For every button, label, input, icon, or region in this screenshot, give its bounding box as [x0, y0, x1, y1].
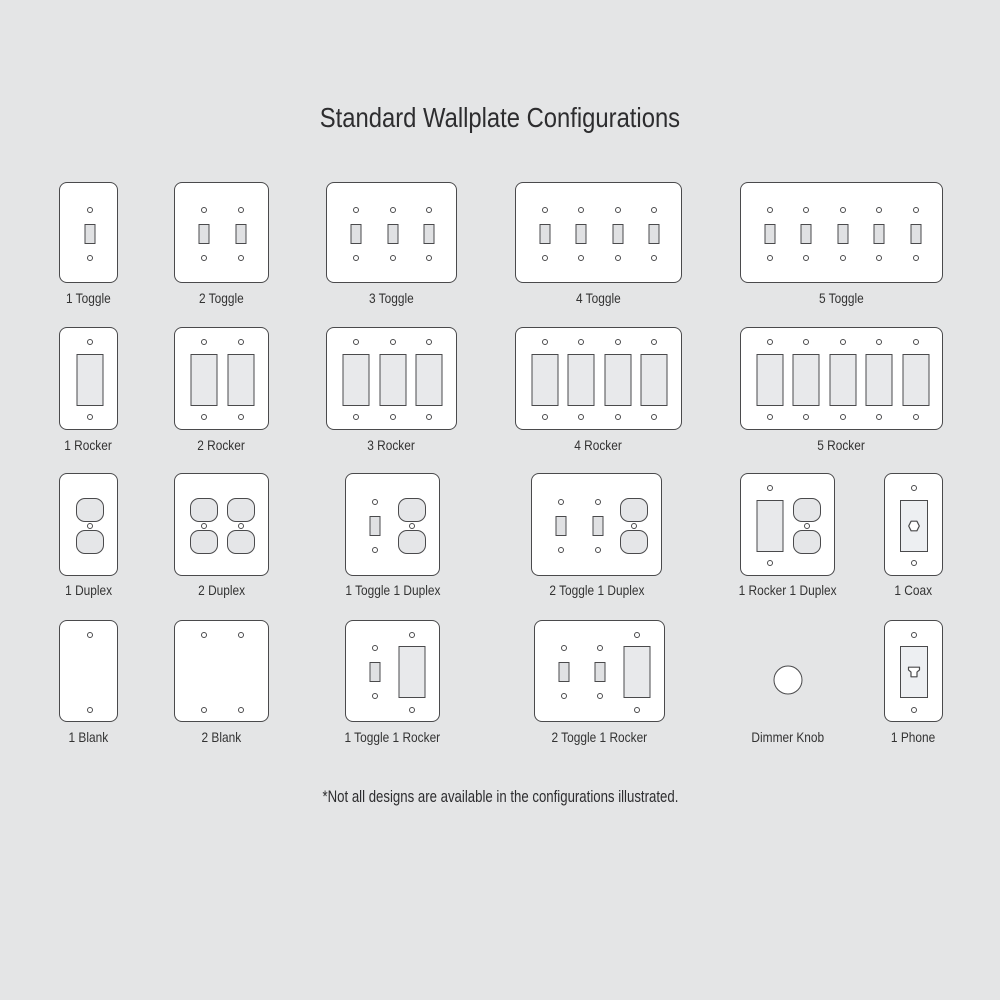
screw-hole	[542, 414, 548, 420]
screw-hole	[597, 645, 603, 651]
screw-hole	[390, 414, 396, 420]
screw-hole	[201, 207, 207, 213]
wallplate-5-rocker	[740, 327, 943, 430]
screw-hole	[911, 485, 917, 491]
screw-hole	[578, 339, 584, 345]
screw-hole	[372, 693, 378, 699]
toggle-switch-cutout	[539, 224, 550, 244]
toggle-switch-cutout	[801, 224, 812, 244]
toggle-switch-cutout	[370, 516, 381, 536]
duplex-outlet-receptacle	[76, 530, 104, 554]
screw-hole	[767, 255, 773, 261]
screw-hole	[238, 632, 244, 638]
screw-hole	[804, 523, 810, 529]
wallplate-1-toggle	[59, 182, 118, 283]
duplex-outlet-receptacle	[227, 498, 255, 522]
toggle-switch-cutout	[764, 224, 775, 244]
screw-hole	[615, 339, 621, 345]
wallplate-2-duplex	[174, 473, 269, 576]
wallplate-1-duplex	[59, 473, 118, 576]
screw-hole	[372, 645, 378, 651]
rocker-switch-cutout	[604, 354, 631, 406]
page-title: Standard Wallplate Configurations	[0, 102, 1000, 134]
duplex-outlet-receptacle	[620, 530, 648, 554]
toggle-switch-cutout	[351, 224, 362, 244]
plate-label-3-toggle: 3 Toggle	[282, 290, 502, 306]
screw-hole	[803, 255, 809, 261]
screw-hole	[372, 499, 378, 505]
wallplate-3-rocker	[326, 327, 457, 430]
screw-hole	[426, 207, 432, 213]
toggle-switch-cutout	[370, 662, 381, 682]
screw-hole	[911, 707, 917, 713]
toggle-switch-cutout	[556, 516, 567, 536]
screw-hole	[390, 339, 396, 345]
screw-hole	[651, 255, 657, 261]
rocker-switch-cutout	[866, 354, 893, 406]
screw-hole	[578, 207, 584, 213]
screw-hole	[558, 547, 564, 553]
wallplate-4-rocker	[515, 327, 682, 430]
toggle-switch-cutout	[387, 224, 398, 244]
plate-label-1-phone: 1 Phone	[803, 729, 1000, 745]
plate-label-2-toggle-1-rocker: 2 Toggle 1 Rocker	[489, 729, 709, 745]
screw-hole	[876, 207, 882, 213]
screw-hole	[767, 414, 773, 420]
wallplate-5-toggle	[740, 182, 943, 283]
phone-jack-icon	[908, 667, 921, 678]
screw-hole	[201, 632, 207, 638]
wallplate-1-rocker-1-duplex	[740, 473, 835, 576]
rocker-switch-cutout	[756, 354, 783, 406]
screw-hole	[542, 207, 548, 213]
wallplate-1-toggle-1-rocker	[345, 620, 440, 722]
screw-hole	[201, 523, 207, 529]
screw-hole	[426, 339, 432, 345]
screw-hole	[238, 523, 244, 529]
screw-hole	[913, 207, 919, 213]
screw-hole	[238, 339, 244, 345]
wallplate-2-rocker	[174, 327, 269, 430]
screw-hole	[767, 560, 773, 566]
duplex-outlet-receptacle	[190, 530, 218, 554]
wallplate-1-phone	[884, 620, 943, 722]
screw-hole	[201, 414, 207, 420]
screw-hole	[409, 707, 415, 713]
screw-hole	[634, 632, 640, 638]
screw-hole	[634, 707, 640, 713]
toggle-switch-cutout	[837, 224, 848, 244]
duplex-outlet-receptacle	[227, 530, 255, 554]
toggle-switch-cutout	[874, 224, 885, 244]
screw-hole	[615, 414, 621, 420]
screw-hole	[840, 339, 846, 345]
duplex-outlet-receptacle	[190, 498, 218, 522]
screw-hole	[353, 339, 359, 345]
toggle-switch-cutout	[424, 224, 435, 244]
rocker-switch-cutout	[379, 354, 406, 406]
plate-label-3-rocker: 3 Rocker	[282, 437, 502, 453]
toggle-switch-cutout	[235, 224, 246, 244]
screw-hole	[353, 207, 359, 213]
screw-hole	[87, 339, 93, 345]
screw-hole	[390, 255, 396, 261]
toggle-switch-cutout	[592, 516, 603, 536]
screw-hole	[201, 707, 207, 713]
screw-hole	[913, 255, 919, 261]
screw-hole	[578, 255, 584, 261]
wallplate-1-blank	[59, 620, 118, 722]
screw-hole	[409, 523, 415, 529]
rocker-switch-cutout	[191, 354, 218, 406]
rocker-switch-cutout	[76, 354, 103, 406]
screw-hole	[87, 523, 93, 529]
screw-hole	[631, 523, 637, 529]
duplex-outlet-receptacle	[793, 498, 821, 522]
screw-hole	[913, 339, 919, 345]
screw-hole	[87, 414, 93, 420]
wallplate-1-rocker	[59, 327, 118, 430]
rocker-switch-cutout	[793, 354, 820, 406]
screw-hole	[595, 547, 601, 553]
screw-hole	[876, 255, 882, 261]
duplex-outlet-receptacle	[398, 530, 426, 554]
screw-hole	[426, 414, 432, 420]
screw-hole	[238, 207, 244, 213]
plate-label-4-toggle: 4 Toggle	[489, 290, 709, 306]
coax-connector-icon	[908, 520, 920, 531]
screw-hole	[87, 632, 93, 638]
screw-hole	[595, 499, 601, 505]
plate-label-5-rocker: 5 Rocker	[732, 437, 952, 453]
screw-hole	[767, 207, 773, 213]
rocker-switch-cutout	[829, 354, 856, 406]
plate-label-2-toggle-1-duplex: 2 Toggle 1 Duplex	[487, 582, 707, 598]
footnote: *Not all designs are available in the co…	[0, 788, 1000, 807]
plate-label-4-rocker: 4 Rocker	[489, 437, 709, 453]
screw-hole	[840, 207, 846, 213]
screw-hole	[651, 339, 657, 345]
rocker-switch-cutout	[531, 354, 558, 406]
duplex-outlet-receptacle	[398, 498, 426, 522]
screw-hole	[390, 207, 396, 213]
wallplate-2-toggle-1-rocker	[534, 620, 665, 722]
duplex-outlet-receptacle	[793, 530, 821, 554]
screw-hole	[353, 414, 359, 420]
screw-hole	[561, 693, 567, 699]
screw-hole	[767, 339, 773, 345]
screw-hole	[911, 632, 917, 638]
screw-hole	[578, 414, 584, 420]
toggle-switch-cutout	[199, 224, 210, 244]
wallplate-4-toggle	[515, 182, 682, 283]
screw-hole	[803, 207, 809, 213]
toggle-switch-cutout	[910, 224, 921, 244]
screw-hole	[542, 255, 548, 261]
screw-hole	[353, 255, 359, 261]
screw-hole	[615, 255, 621, 261]
screw-hole	[840, 414, 846, 420]
screw-hole	[542, 339, 548, 345]
screw-hole	[238, 255, 244, 261]
duplex-outlet-receptacle	[620, 498, 648, 522]
screw-hole	[767, 485, 773, 491]
screw-hole	[561, 645, 567, 651]
screw-hole	[911, 560, 917, 566]
toggle-switch-cutout	[612, 224, 623, 244]
rocker-switch-cutout	[623, 646, 650, 698]
rocker-switch-cutout	[398, 646, 425, 698]
plate-label-1-coax: 1 Coax	[803, 582, 1000, 598]
screw-hole	[876, 414, 882, 420]
screw-hole	[615, 207, 621, 213]
plate-label-5-toggle: 5 Toggle	[732, 290, 952, 306]
toggle-switch-cutout	[84, 224, 95, 244]
screw-hole	[238, 414, 244, 420]
toggle-switch-cutout	[558, 662, 569, 682]
rocker-switch-cutout	[227, 354, 254, 406]
rocker-switch-cutout	[343, 354, 370, 406]
wallplate-1-toggle-1-duplex	[345, 473, 440, 576]
rocker-switch-cutout	[902, 354, 929, 406]
wallplate-2-blank	[174, 620, 269, 722]
diagram-canvas: Standard Wallplate Configurations 1 Togg…	[0, 0, 1000, 1000]
screw-hole	[87, 255, 93, 261]
screw-hole	[87, 207, 93, 213]
wallplate-3-toggle	[326, 182, 457, 283]
duplex-outlet-receptacle	[76, 498, 104, 522]
screw-hole	[803, 339, 809, 345]
rocker-switch-cutout	[568, 354, 595, 406]
screw-hole	[201, 255, 207, 261]
rocker-switch-cutout	[757, 500, 784, 552]
toggle-switch-cutout	[595, 662, 606, 682]
dimmer-knob	[774, 666, 803, 695]
toggle-switch-cutout	[649, 224, 660, 244]
screw-hole	[558, 499, 564, 505]
screw-hole	[87, 707, 93, 713]
wallplate-1-coax	[884, 473, 943, 576]
screw-hole	[597, 693, 603, 699]
screw-hole	[372, 547, 378, 553]
screw-hole	[840, 255, 846, 261]
screw-hole	[651, 414, 657, 420]
screw-hole	[876, 339, 882, 345]
wallplate-2-toggle	[174, 182, 269, 283]
wallplate-2-toggle-1-duplex	[531, 473, 662, 576]
rocker-switch-cutout	[416, 354, 443, 406]
screw-hole	[201, 339, 207, 345]
screw-hole	[238, 707, 244, 713]
plate-label-1-toggle-1-duplex: 1 Toggle 1 Duplex	[283, 582, 503, 598]
rocker-switch-cutout	[641, 354, 668, 406]
screw-hole	[409, 632, 415, 638]
screw-hole	[426, 255, 432, 261]
screw-hole	[913, 414, 919, 420]
toggle-switch-cutout	[576, 224, 587, 244]
plate-label-1-toggle-1-rocker: 1 Toggle 1 Rocker	[283, 729, 503, 745]
screw-hole	[651, 207, 657, 213]
screw-hole	[803, 414, 809, 420]
